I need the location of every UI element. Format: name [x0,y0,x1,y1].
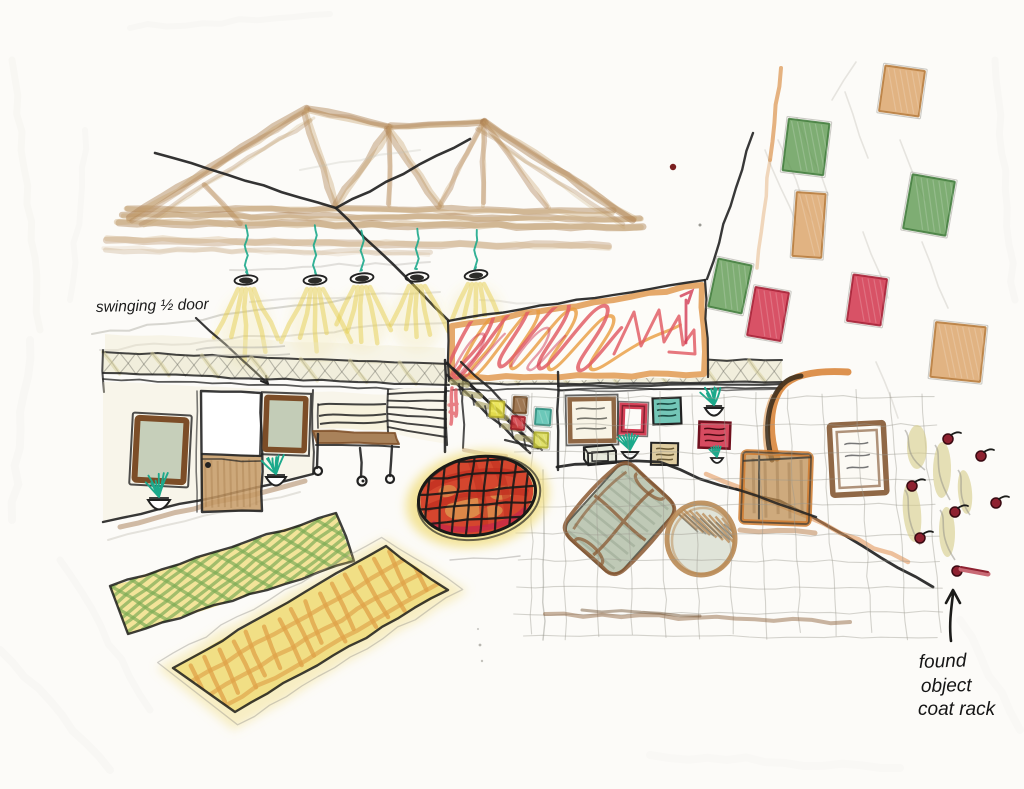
svg-text:found: found [918,650,968,673]
svg-text:coat rack: coat rack [918,699,997,720]
svg-text:object: object [921,675,973,697]
svg-text:swinging ½ door: swinging ½ door [96,296,210,316]
